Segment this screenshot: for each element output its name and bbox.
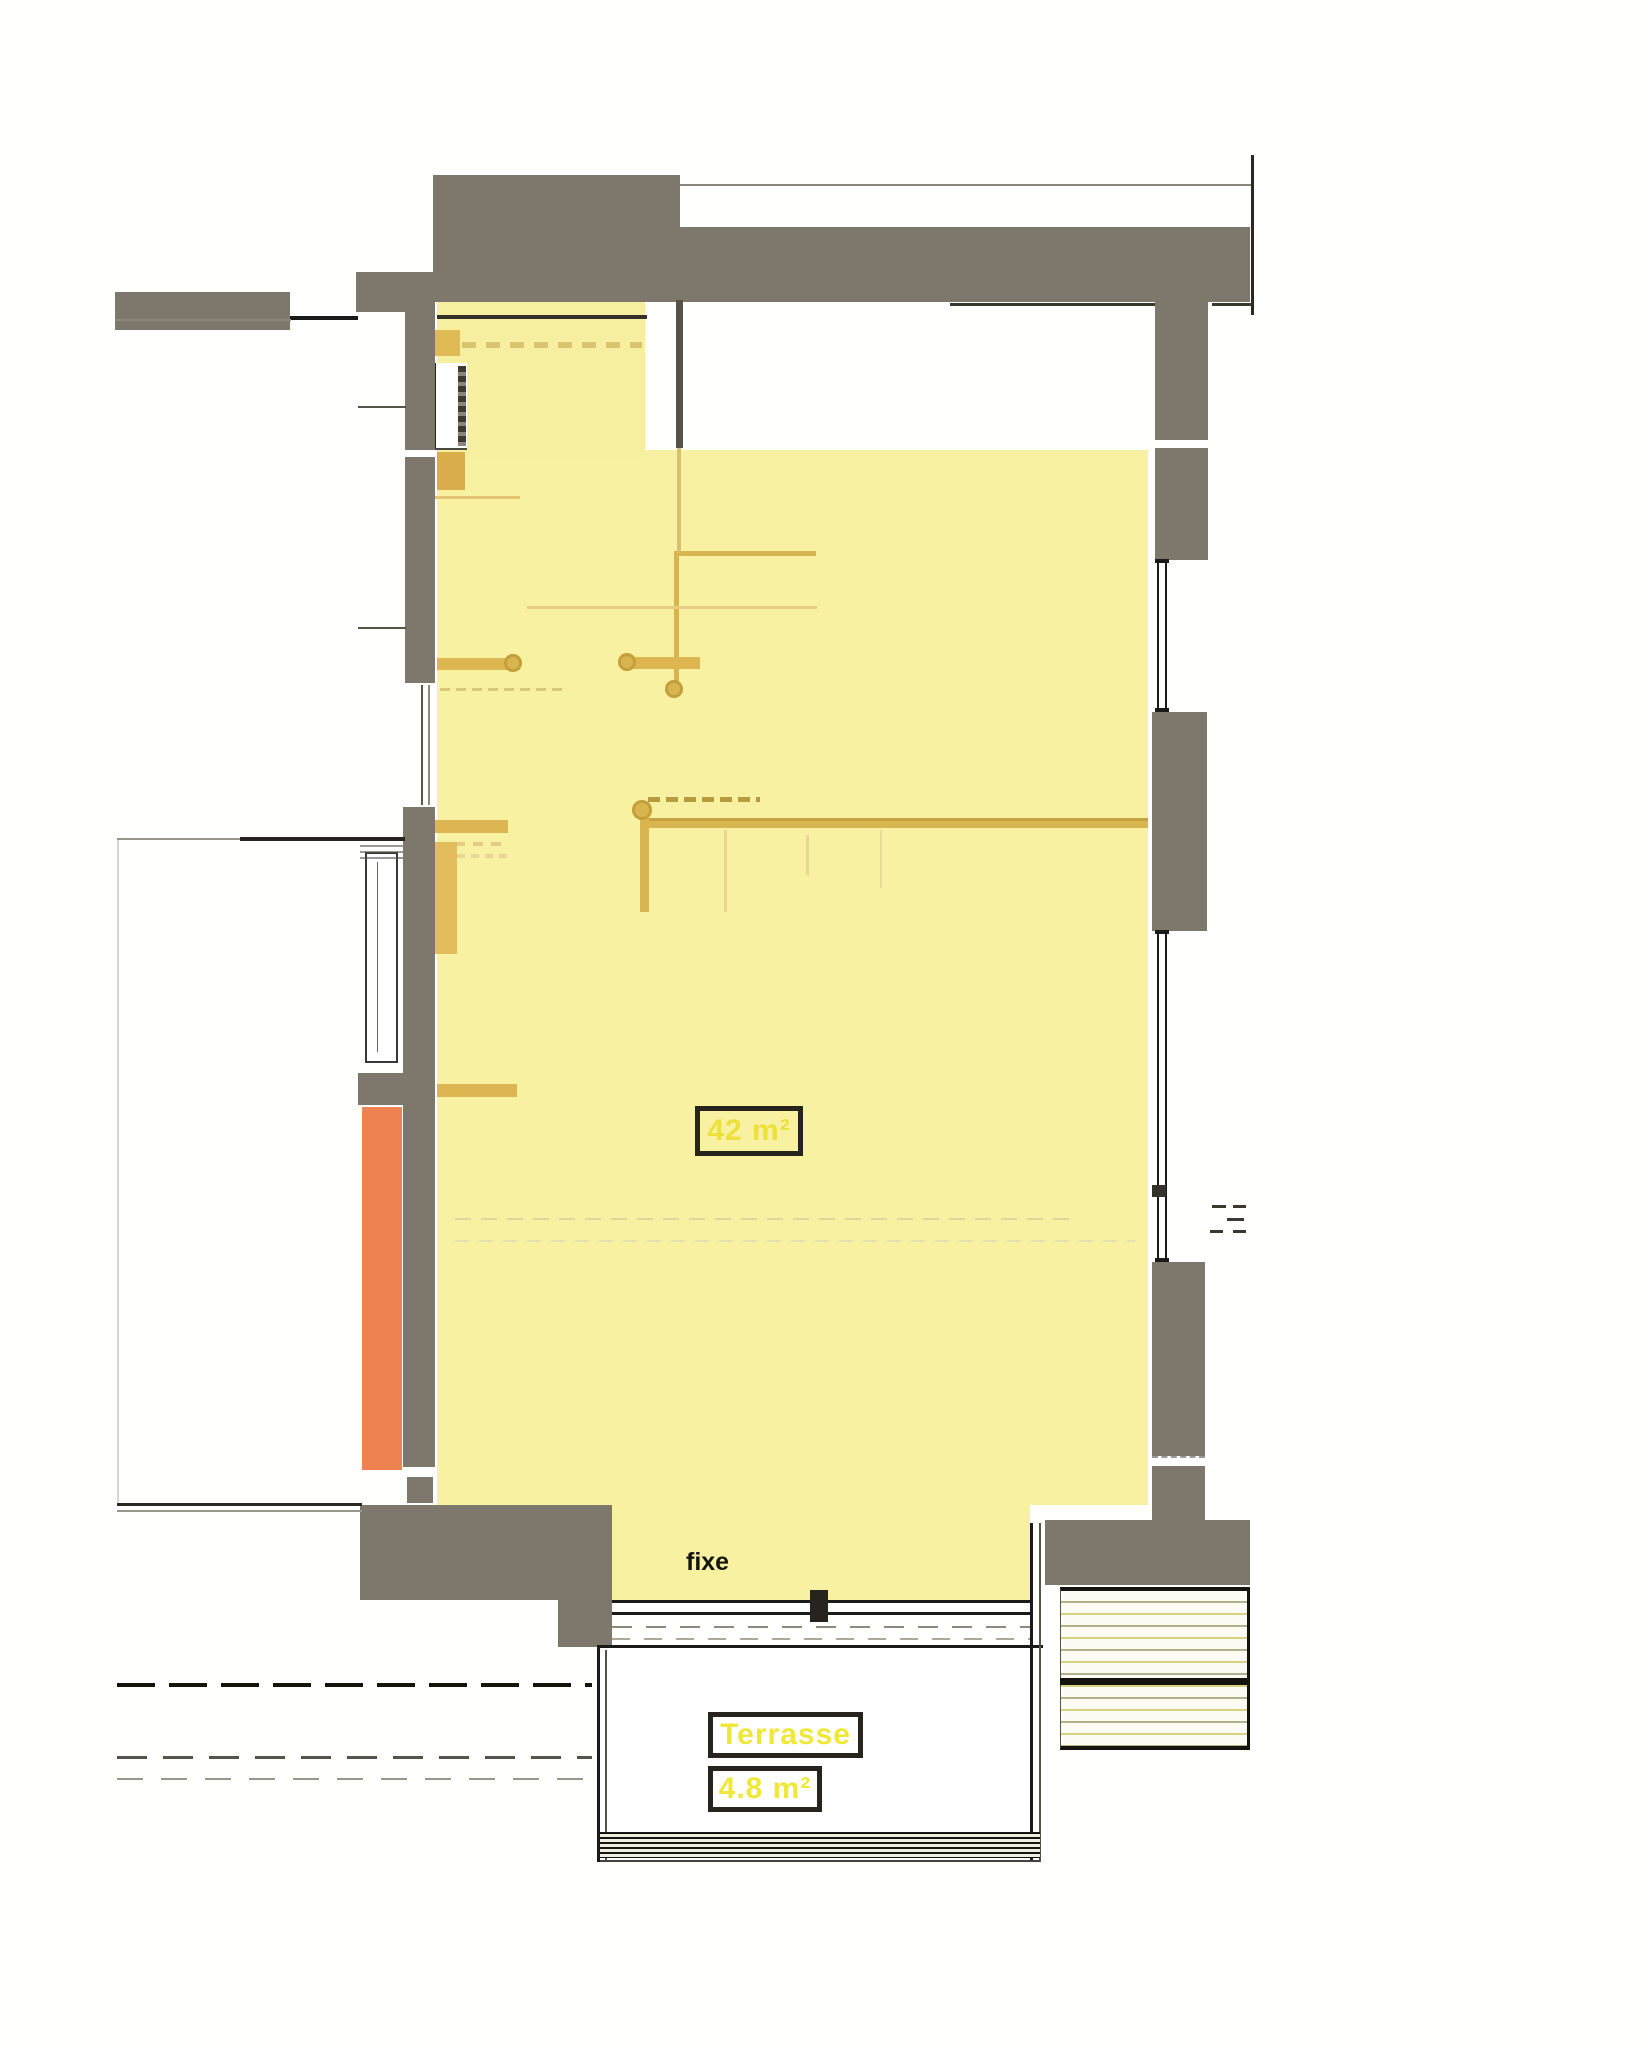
door-pivot	[632, 800, 652, 820]
wall-right-mid	[1152, 712, 1207, 931]
door-leaf-3	[627, 657, 700, 669]
threshold-dashes	[440, 688, 565, 691]
terrace-left-edge	[597, 1645, 600, 1862]
wall-left-upper	[405, 298, 435, 683]
partition-dash-upper	[648, 797, 760, 802]
wall-left-horiz	[358, 1073, 435, 1105]
door-frame-vert	[674, 551, 679, 691]
partition-line-long	[640, 818, 1148, 828]
partition-return	[640, 812, 649, 912]
wall-top-right-band	[680, 227, 1250, 302]
wall-joint-gap-2	[1155, 440, 1208, 448]
site-dashed-line-2	[117, 1756, 592, 1759]
sill-line-under-projection	[437, 315, 647, 319]
stairs-mid-divider	[1060, 1678, 1250, 1685]
terrace-area-label: 4.8 m²	[719, 1772, 812, 1806]
window-joint-block	[1152, 1185, 1166, 1197]
kitchen-unit	[433, 842, 457, 954]
terrace-area-box: 4.8 m²	[708, 1766, 822, 1812]
window-left-a	[421, 685, 423, 805]
sill-line-top-left	[115, 319, 291, 321]
wall-bottom-band	[360, 1505, 565, 1600]
leader-line-1	[358, 406, 406, 408]
neighbor-outline-right	[1251, 155, 1254, 315]
radiator-bar	[437, 1084, 517, 1097]
window-right-lower-b	[1165, 933, 1167, 1260]
neighbor-wall-line-bottom-2	[117, 1510, 362, 1512]
corridor-partition-ghost	[677, 448, 681, 553]
floor-plan: 42 m² fixe Terrasse 4.8 m²	[0, 0, 1648, 2048]
terrace-left-edge-inner	[605, 1650, 607, 1860]
site-dashed-line-3	[117, 1778, 592, 1780]
ghost-line-horiz	[527, 606, 817, 609]
door-leaf	[430, 820, 508, 833]
door-pivot-3	[504, 654, 522, 672]
unit-ghost-line-2	[806, 835, 809, 875]
terrace-name-label: Terrasse	[720, 1718, 851, 1752]
band-joint-line	[950, 303, 1155, 306]
room-ghost-dash-2	[455, 1240, 1135, 1242]
site-dashed-line-1	[117, 1683, 592, 1687]
terrace-top-edge	[597, 1645, 1043, 1648]
wall-bottom-stub	[558, 1505, 612, 1647]
exterior-balcony-outline	[365, 852, 398, 1063]
orange-wall-highlight	[362, 1107, 402, 1470]
closet-door-marks	[458, 366, 466, 446]
vent-symbol-dash-1	[1212, 1205, 1226, 1208]
window-cap-2	[1155, 708, 1169, 712]
counter-edge-dashes	[462, 342, 642, 348]
fixture-block	[437, 452, 465, 490]
glazing-mullion	[810, 1590, 828, 1622]
wall-joint-gap	[405, 450, 435, 457]
neighbor-line-left-dark	[240, 837, 405, 841]
wall-left-lower-2	[403, 1105, 435, 1467]
neighbor-line-left	[117, 838, 242, 840]
window-cap-4	[1155, 1258, 1169, 1262]
wall-corner-bottom-right	[1045, 1520, 1250, 1585]
ghost-line-2	[425, 496, 520, 499]
terrace-right-edge	[1030, 1523, 1033, 1862]
balcony-hatch	[360, 845, 404, 859]
vent-symbol-dash-4	[1210, 1230, 1223, 1233]
window-bay-fill	[612, 1505, 1030, 1602]
neighbor-facade-line	[117, 840, 119, 1503]
window-left-b	[428, 685, 430, 805]
terrace-sill-underline	[600, 1860, 1040, 1862]
window-top-left	[290, 316, 358, 320]
wall-left-door-jamb	[407, 1477, 433, 1503]
wall-top-left-a	[115, 292, 290, 330]
window-right-upper-b	[1165, 562, 1167, 710]
main-area-label-box: 42 m²	[695, 1106, 803, 1156]
leader-line-2	[358, 627, 406, 629]
window-cap-3	[1155, 930, 1169, 934]
window-right-lower-a	[1157, 933, 1159, 1260]
vent-symbol-dash-3	[1227, 1218, 1244, 1221]
room-ghost-dash-1	[455, 1218, 1075, 1220]
door-frame-horiz	[676, 551, 816, 556]
unit-ghost-line-1	[724, 830, 727, 912]
neighbor-wall-line-bottom	[117, 1503, 362, 1506]
wall-left-lower	[403, 807, 435, 1073]
vent-symbol-dash-2	[1233, 1205, 1246, 1208]
unit-ghost-line-3	[880, 830, 882, 888]
sill-dash-2	[612, 1638, 1032, 1640]
balcony-inner-line	[377, 862, 378, 1052]
entry-corridor-fill	[437, 298, 645, 458]
exterior-stairs	[1060, 1587, 1250, 1750]
corridor-partition	[676, 300, 683, 448]
neighbor-outline-top	[680, 184, 1253, 186]
vent-symbol-dash-5	[1233, 1230, 1246, 1233]
terrace-sill-hatch	[600, 1832, 1040, 1858]
terrace-right-edge-inner	[1039, 1523, 1041, 1862]
main-area-label: 42 m²	[707, 1114, 790, 1148]
wall-right-low	[1152, 1262, 1205, 1550]
wall-joint-gap-3	[1152, 1456, 1205, 1466]
fixed-window-note: fixe	[686, 1548, 729, 1577]
wall-right-stub	[1155, 302, 1208, 560]
sill-dash-1	[612, 1626, 1032, 1628]
terrace-name-box: Terrasse	[708, 1712, 863, 1758]
door-pivot-4	[618, 653, 636, 671]
door-pivot-2	[665, 680, 683, 698]
window-right-upper-a	[1157, 562, 1159, 710]
window-cap-1	[1155, 559, 1169, 563]
band-joint-line-2	[1212, 303, 1252, 306]
wall-top-projection	[433, 175, 680, 302]
